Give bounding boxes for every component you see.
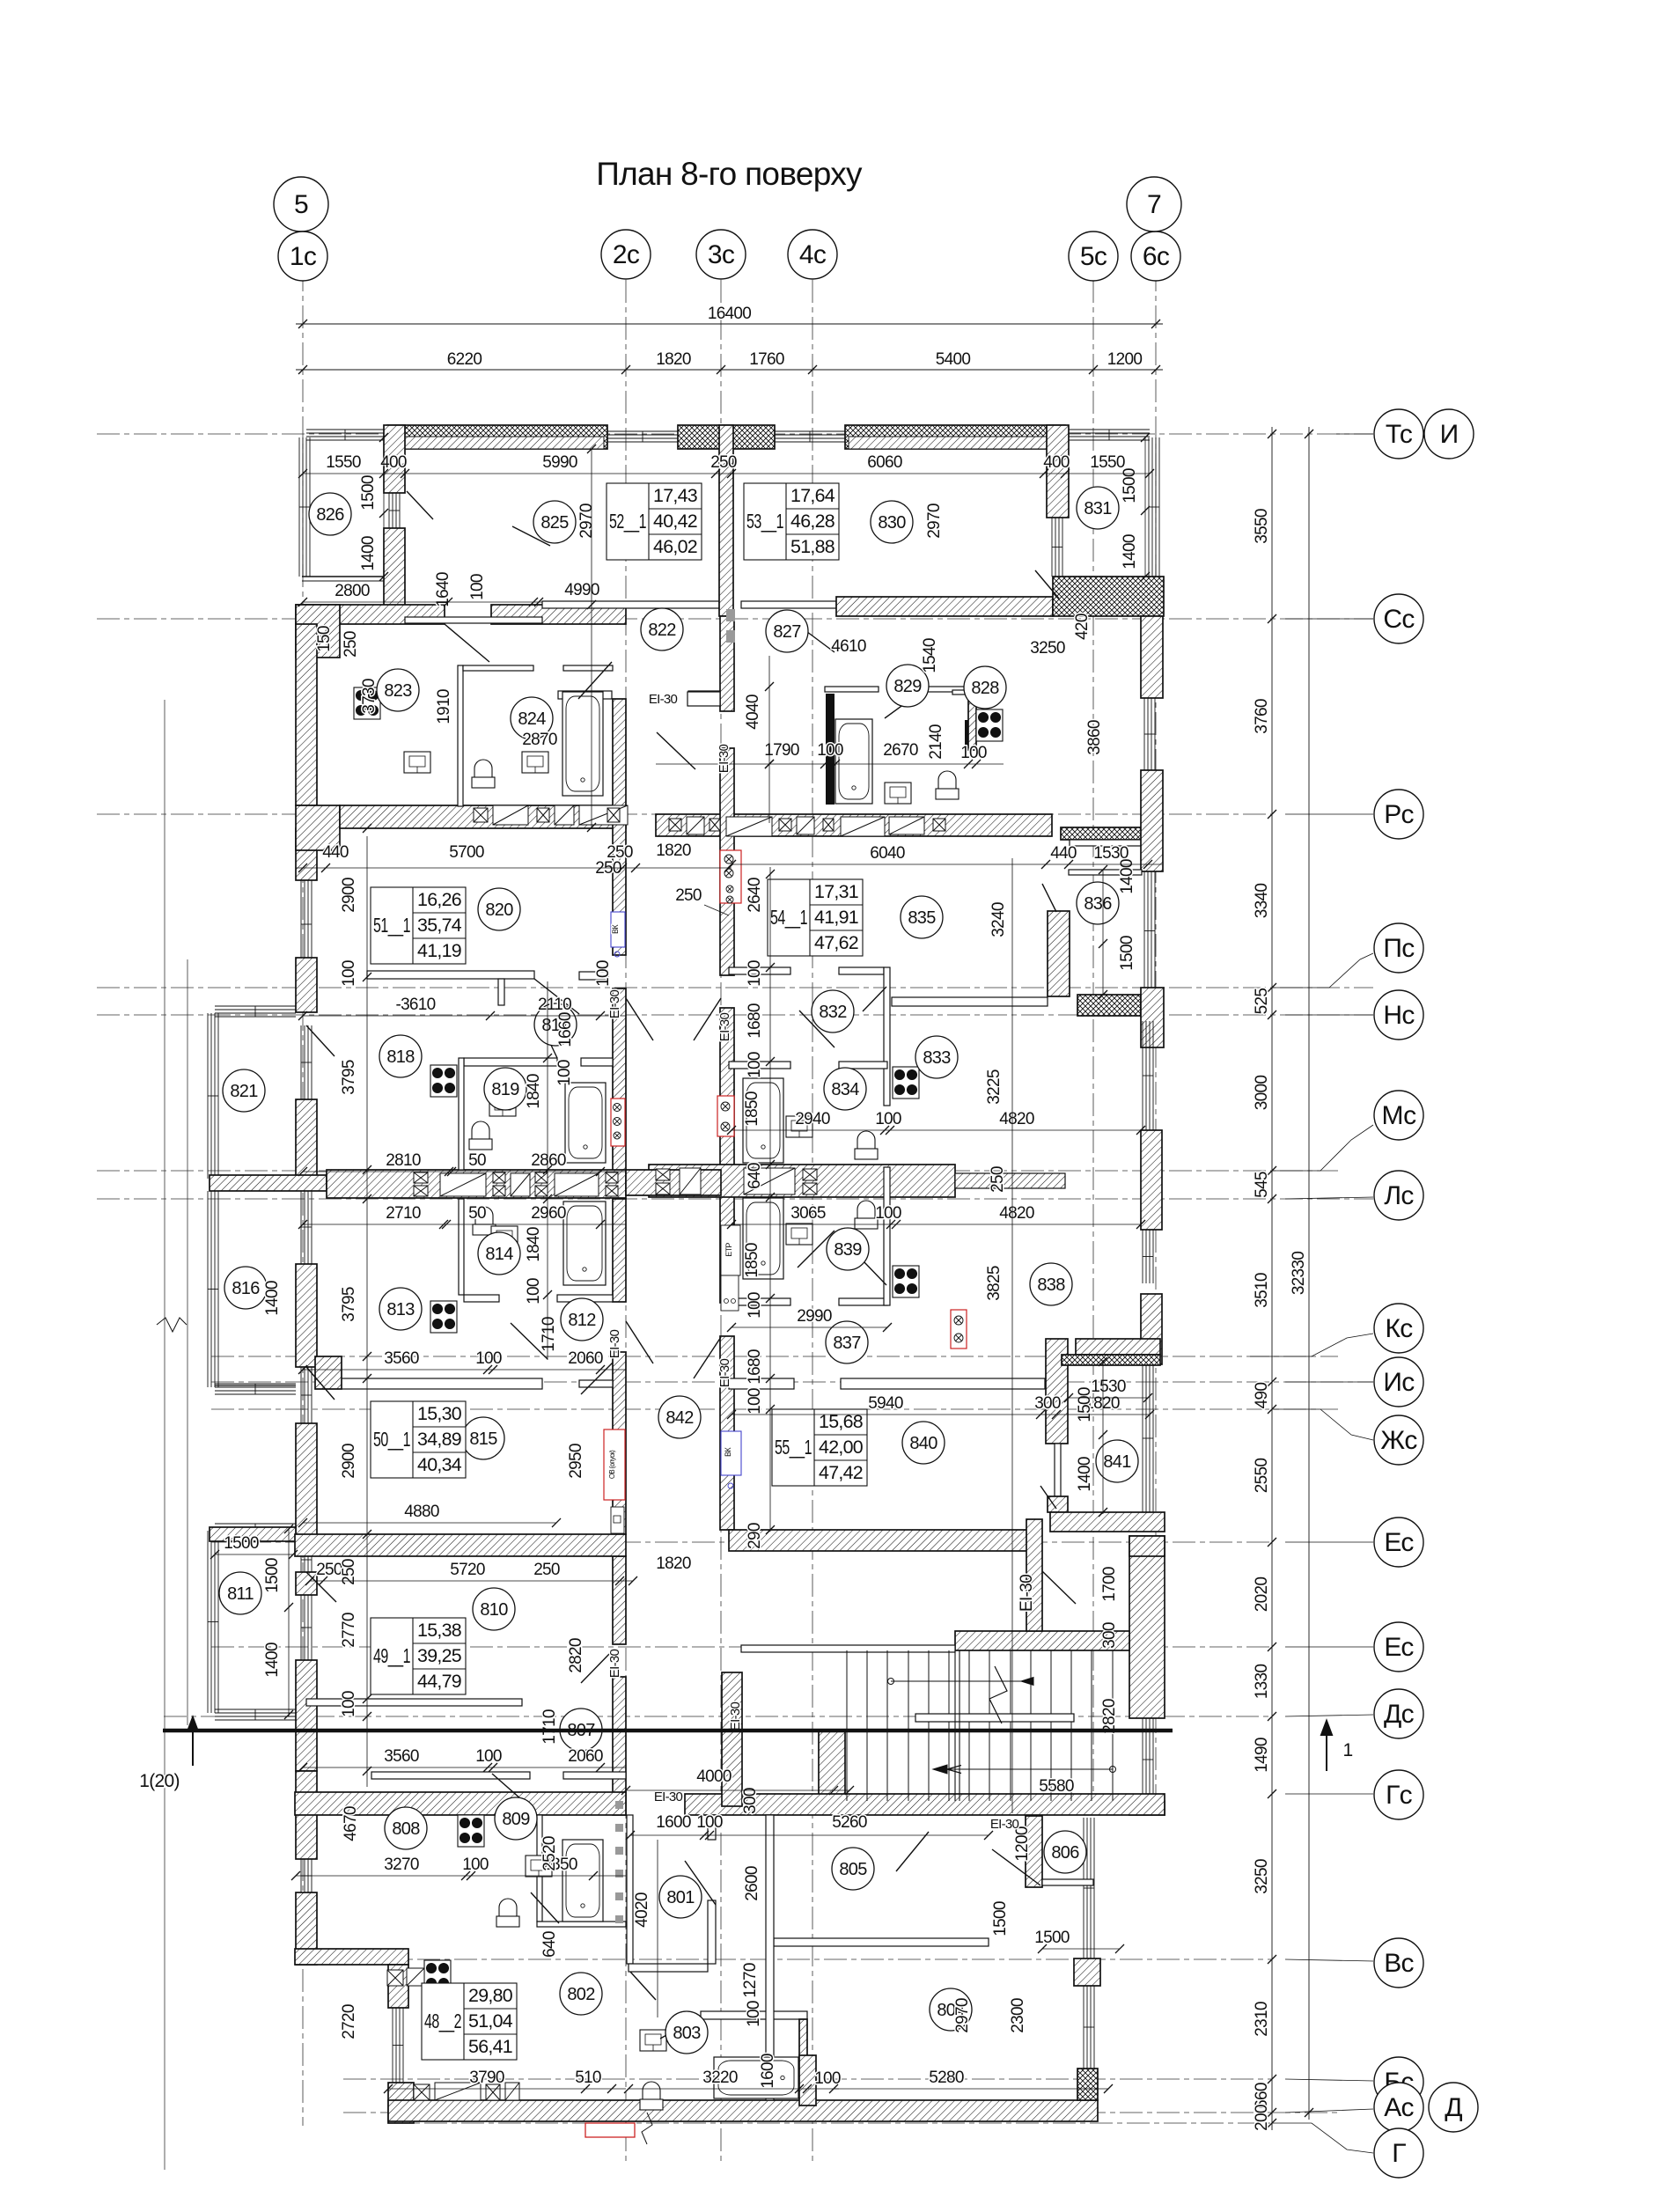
svg-text:100: 100 <box>475 1747 502 1766</box>
svg-text:814: 814 <box>485 1245 513 1264</box>
svg-text:510: 510 <box>575 2069 601 2087</box>
svg-text:100: 100 <box>555 1060 574 1086</box>
svg-text:100: 100 <box>340 960 358 987</box>
svg-text:3790: 3790 <box>469 2069 504 2087</box>
svg-text:250: 250 <box>342 631 360 658</box>
svg-text:1850: 1850 <box>743 1091 761 1127</box>
svg-text:5580: 5580 <box>1039 1777 1074 1796</box>
svg-text:100: 100 <box>817 741 843 760</box>
svg-text:ЕІ-30: ЕІ-30 <box>654 1789 683 1804</box>
svg-text:Лс: Лс <box>1384 1181 1414 1210</box>
svg-text:3250: 3250 <box>1253 1859 1271 1894</box>
svg-text:5700: 5700 <box>449 843 484 862</box>
svg-text:3560: 3560 <box>384 1349 419 1368</box>
svg-text:2970: 2970 <box>925 503 944 539</box>
svg-text:818: 818 <box>386 1047 415 1067</box>
svg-text:834: 834 <box>831 1080 859 1099</box>
svg-text:826: 826 <box>316 505 344 525</box>
svg-text:2140: 2140 <box>927 724 945 760</box>
svg-text:300: 300 <box>1100 1622 1119 1649</box>
svg-text:5260: 5260 <box>832 1813 867 1832</box>
svg-text:5280: 5280 <box>929 2069 964 2087</box>
svg-text:-3610: -3610 <box>395 996 435 1014</box>
svg-text:100: 100 <box>475 1349 502 1368</box>
svg-text:100: 100 <box>746 1292 764 1319</box>
svg-text:820: 820 <box>485 900 513 920</box>
svg-text:ОВ (опуск): ОВ (опуск) <box>608 1450 616 1479</box>
svg-text:4990: 4990 <box>564 581 599 599</box>
svg-text:Мс: Мс <box>1382 1101 1417 1130</box>
svg-text:816: 816 <box>232 1279 260 1298</box>
svg-text:41,91: 41,91 <box>814 908 858 928</box>
svg-text:29,80: 29,80 <box>468 1986 512 2006</box>
svg-text:3340: 3340 <box>1253 884 1271 919</box>
svg-text:Рс: Рс <box>1384 800 1414 829</box>
svg-text:ЕІ-30: ЕІ-30 <box>649 692 678 707</box>
svg-text:2870: 2870 <box>522 731 557 749</box>
svg-text:Ис: Ис <box>1383 1368 1415 1397</box>
svg-text:Пс: Пс <box>1383 934 1415 963</box>
svg-text:50__1: 50__1 <box>373 1428 410 1451</box>
svg-text:Ес: Ес <box>1384 1633 1414 1662</box>
svg-text:4с: 4с <box>799 240 827 269</box>
svg-text:ЕІ-30: ЕІ-30 <box>990 1817 1019 1832</box>
svg-text:1840: 1840 <box>525 1074 543 1109</box>
svg-text:6060: 6060 <box>867 453 902 472</box>
svg-text:490: 490 <box>1253 1383 1271 1409</box>
svg-text:803: 803 <box>673 2024 701 2043</box>
svg-text:53__1: 53__1 <box>746 510 783 533</box>
svg-text:4880: 4880 <box>404 1503 439 1521</box>
svg-text:3860: 3860 <box>1085 720 1104 755</box>
svg-text:2860: 2860 <box>531 1151 566 1170</box>
svg-text:640: 640 <box>540 1931 559 1958</box>
svg-text:828: 828 <box>971 679 999 698</box>
svg-text:1490: 1490 <box>1253 1738 1271 1773</box>
svg-text:5с: 5с <box>1080 242 1107 271</box>
svg-text:Нс: Нс <box>1383 1001 1415 1030</box>
svg-text:300: 300 <box>741 1788 760 1814</box>
svg-text:3760: 3760 <box>1253 699 1271 734</box>
svg-text:1820: 1820 <box>656 350 691 369</box>
svg-text:4820: 4820 <box>999 1110 1034 1128</box>
svg-text:100: 100 <box>594 960 613 987</box>
svg-text:100: 100 <box>745 2001 763 2027</box>
svg-text:3220: 3220 <box>702 2069 738 2087</box>
svg-text:808: 808 <box>392 1819 420 1839</box>
svg-text:2990: 2990 <box>797 1307 832 1326</box>
svg-text:640: 640 <box>746 1163 764 1189</box>
svg-text:1530: 1530 <box>1091 1378 1126 1396</box>
svg-text:5940: 5940 <box>868 1394 903 1413</box>
svg-text:250: 250 <box>316 1561 342 1579</box>
svg-text:2640: 2640 <box>746 878 764 913</box>
svg-text:50: 50 <box>468 1204 486 1223</box>
svg-text:4820: 4820 <box>999 1204 1034 1223</box>
svg-text:3510: 3510 <box>1253 1273 1271 1308</box>
svg-text:100: 100 <box>746 1388 764 1415</box>
svg-text:1700: 1700 <box>1100 1567 1119 1602</box>
svg-text:1400: 1400 <box>359 536 378 571</box>
svg-text:ЕІ-30: ЕІ-30 <box>717 1012 732 1041</box>
svg-text:15,30: 15,30 <box>417 1404 461 1424</box>
svg-text:51,04: 51,04 <box>468 2011 513 2032</box>
svg-text:100: 100 <box>696 1813 723 1832</box>
svg-text:15,68: 15,68 <box>819 1412 863 1432</box>
svg-text:2900: 2900 <box>340 878 358 913</box>
svg-text:1500: 1500 <box>224 1534 259 1553</box>
svg-text:1с: 1с <box>290 242 317 271</box>
svg-text:Кс: Кс <box>1385 1314 1413 1343</box>
svg-text:5: 5 <box>294 190 308 219</box>
svg-text:3550: 3550 <box>1253 509 1271 544</box>
svg-text:840: 840 <box>909 1434 937 1453</box>
svg-text:2720: 2720 <box>340 2004 358 2039</box>
svg-text:100: 100 <box>875 1110 901 1128</box>
svg-text:1760: 1760 <box>749 350 784 369</box>
svg-text:833: 833 <box>923 1048 951 1068</box>
svg-text:250: 250 <box>533 1561 560 1579</box>
svg-text:2300: 2300 <box>1009 1998 1027 2033</box>
svg-text:821: 821 <box>230 1082 258 1101</box>
svg-text:3270: 3270 <box>384 1856 419 1874</box>
svg-text:52__1: 52__1 <box>609 510 646 533</box>
svg-text:2600: 2600 <box>743 1866 761 1901</box>
svg-text:ЕІ-30: ЕІ-30 <box>1018 1575 1036 1612</box>
svg-text:35,74: 35,74 <box>417 915 462 936</box>
svg-text:400: 400 <box>1043 453 1070 472</box>
svg-text:ЕІ-30: ЕІ-30 <box>607 1649 622 1678</box>
svg-text:2060: 2060 <box>568 1349 603 1368</box>
svg-text:809: 809 <box>502 1810 530 1829</box>
svg-text:100: 100 <box>525 1278 543 1304</box>
svg-text:100: 100 <box>746 960 764 987</box>
svg-text:1330: 1330 <box>1253 1665 1271 1700</box>
svg-text:2940: 2940 <box>795 1110 830 1128</box>
svg-text:ЕІ-30: ЕІ-30 <box>728 1701 743 1731</box>
svg-text:5990: 5990 <box>542 453 577 472</box>
svg-text:ЕІ-30: ЕІ-30 <box>717 1358 732 1387</box>
svg-text:3000: 3000 <box>1253 1076 1271 1111</box>
svg-text:290: 290 <box>746 1523 764 1549</box>
svg-text:819: 819 <box>491 1080 519 1099</box>
svg-text:42,00: 42,00 <box>819 1437 863 1458</box>
svg-text:150: 150 <box>315 626 334 652</box>
svg-text:50: 50 <box>468 1151 486 1170</box>
svg-text:3065: 3065 <box>790 1204 826 1223</box>
svg-text:2820: 2820 <box>567 1638 585 1673</box>
svg-text:2670: 2670 <box>883 741 918 760</box>
svg-text:1500: 1500 <box>991 1901 1010 1936</box>
svg-text:1680: 1680 <box>746 1003 764 1039</box>
svg-text:1200: 1200 <box>1013 1826 1032 1862</box>
svg-text:Жс: Жс <box>1380 1426 1417 1455</box>
svg-text:841: 841 <box>1103 1452 1131 1472</box>
svg-text:54__1: 54__1 <box>770 906 807 929</box>
svg-text:1400: 1400 <box>263 1281 282 1316</box>
svg-text:842: 842 <box>665 1408 694 1428</box>
svg-text:1500: 1500 <box>1076 1387 1094 1422</box>
svg-text:2800: 2800 <box>335 582 370 600</box>
svg-text:2770: 2770 <box>340 1613 358 1648</box>
svg-text:ЕТР: ЕТР <box>724 1243 733 1257</box>
svg-text:Сс: Сс <box>1383 605 1415 634</box>
svg-text:100: 100 <box>468 574 487 600</box>
svg-text:250: 250 <box>710 453 737 472</box>
svg-text:100: 100 <box>462 1856 489 1874</box>
svg-text:1540: 1540 <box>921 638 939 673</box>
svg-text:1660: 1660 <box>556 1012 575 1047</box>
svg-text:812: 812 <box>568 1311 596 1330</box>
svg-text:3795: 3795 <box>340 1287 358 1322</box>
svg-text:41,19: 41,19 <box>417 941 461 961</box>
svg-text:40,34: 40,34 <box>417 1455 462 1475</box>
svg-text:5400: 5400 <box>936 350 971 369</box>
svg-text:1500: 1500 <box>1034 1929 1070 1947</box>
svg-text:250: 250 <box>675 886 702 905</box>
svg-text:ЕІ-30: ЕІ-30 <box>717 744 732 773</box>
svg-text:200: 200 <box>1253 2105 1271 2131</box>
svg-text:835: 835 <box>908 908 936 928</box>
svg-text:4670: 4670 <box>342 1806 360 1841</box>
svg-text:813: 813 <box>386 1300 415 1319</box>
svg-text:832: 832 <box>819 1003 847 1022</box>
svg-text:1: 1 <box>1343 1740 1353 1760</box>
svg-text:1600: 1600 <box>656 1813 691 1832</box>
svg-text:16,26: 16,26 <box>417 890 461 910</box>
svg-text:3250: 3250 <box>1030 639 1065 658</box>
svg-text:1550: 1550 <box>1090 453 1125 472</box>
svg-text:32330: 32330 <box>1290 1252 1308 1295</box>
svg-text:250: 250 <box>595 859 621 878</box>
svg-text:1270: 1270 <box>741 1963 760 1998</box>
svg-text:1600: 1600 <box>759 2054 777 2089</box>
svg-text:2020: 2020 <box>1253 1577 1271 1613</box>
svg-text:1500: 1500 <box>359 475 378 511</box>
svg-text:2550: 2550 <box>1253 1459 1271 1494</box>
svg-text:ЕІ-30: ЕІ-30 <box>607 989 622 1018</box>
svg-text:1400: 1400 <box>1121 534 1139 570</box>
svg-text:Гс: Гс <box>1386 1781 1413 1810</box>
svg-text:39,25: 39,25 <box>417 1646 461 1666</box>
svg-text:1(20): 1(20) <box>139 1771 180 1791</box>
svg-text:1840: 1840 <box>525 1227 543 1262</box>
svg-text:46,28: 46,28 <box>790 511 834 532</box>
svg-text:Вс: Вс <box>1384 1949 1414 1978</box>
svg-text:2970: 2970 <box>577 503 596 539</box>
svg-text:44,79: 44,79 <box>417 1672 461 1692</box>
svg-text:400: 400 <box>380 453 407 472</box>
svg-text:Ас: Ас <box>1384 2093 1414 2122</box>
svg-text:2520: 2520 <box>540 1836 559 1871</box>
svg-text:3825: 3825 <box>985 1266 1004 1301</box>
svg-text:ВК: ВК <box>724 1447 732 1457</box>
svg-text:802: 802 <box>567 1985 595 2004</box>
svg-text:1850: 1850 <box>743 1243 761 1278</box>
svg-text:17,64: 17,64 <box>790 486 835 506</box>
svg-text:План 8-го поверху: План 8-го поверху <box>596 156 863 192</box>
svg-text:7: 7 <box>1147 190 1161 219</box>
svg-text:806: 806 <box>1051 1843 1079 1863</box>
svg-text:440: 440 <box>322 843 349 862</box>
svg-text:2810: 2810 <box>386 1151 421 1170</box>
svg-text:17,43: 17,43 <box>653 486 697 506</box>
svg-text:824: 824 <box>518 709 546 729</box>
svg-text:1820: 1820 <box>656 841 691 860</box>
svg-text:1550: 1550 <box>326 453 361 472</box>
svg-text:2110: 2110 <box>538 996 571 1014</box>
svg-text:47,62: 47,62 <box>814 933 858 953</box>
svg-text:Дс: Дс <box>1384 1700 1415 1729</box>
svg-text:100: 100 <box>875 1204 901 1223</box>
svg-text:Ес: Ес <box>1384 1528 1414 1557</box>
svg-text:810: 810 <box>480 1600 508 1620</box>
svg-text:34,89: 34,89 <box>417 1429 461 1450</box>
svg-text:Тс: Тс <box>1386 420 1413 449</box>
svg-text:И: И <box>1440 420 1459 449</box>
svg-text:3с: 3с <box>708 240 735 269</box>
svg-text:1820: 1820 <box>656 1554 691 1573</box>
svg-text:4040: 4040 <box>744 694 762 730</box>
svg-text:5720: 5720 <box>450 1561 485 1579</box>
svg-text:1500: 1500 <box>263 1558 282 1593</box>
svg-text:825: 825 <box>540 513 569 533</box>
svg-text:3795: 3795 <box>340 1060 358 1095</box>
svg-text:545: 545 <box>1253 1172 1271 1198</box>
svg-text:15,38: 15,38 <box>417 1620 461 1641</box>
svg-text:3560: 3560 <box>384 1747 419 1766</box>
svg-text:Д: Д <box>1445 2093 1462 2122</box>
svg-text:3240: 3240 <box>989 902 1008 937</box>
svg-text:2310: 2310 <box>1253 2002 1271 2037</box>
svg-text:1680: 1680 <box>746 1349 764 1385</box>
svg-text:805: 805 <box>839 1860 867 1879</box>
svg-text:ЕІ-30: ЕІ-30 <box>607 1329 622 1358</box>
svg-text:17,31: 17,31 <box>814 882 858 902</box>
svg-text:51,88: 51,88 <box>790 537 834 557</box>
svg-text:49__1: 49__1 <box>373 1644 410 1667</box>
svg-text:6с: 6с <box>1143 242 1170 271</box>
svg-text:4020: 4020 <box>633 1892 651 1928</box>
svg-text:48__2: 48__2 <box>424 2010 461 2032</box>
svg-text:16400: 16400 <box>708 305 751 323</box>
svg-text:822: 822 <box>648 621 676 640</box>
svg-text:47,42: 47,42 <box>819 1463 863 1483</box>
svg-text:2060: 2060 <box>568 1747 603 1766</box>
svg-text:827: 827 <box>773 622 801 642</box>
svg-text:1710: 1710 <box>540 1317 558 1352</box>
svg-text:3225: 3225 <box>985 1069 1004 1105</box>
svg-text:525: 525 <box>1253 988 1271 1015</box>
svg-text:6040: 6040 <box>870 844 905 863</box>
svg-text:837: 837 <box>833 1334 861 1353</box>
svg-text:811: 811 <box>227 1584 254 1604</box>
svg-text:2900: 2900 <box>340 1444 358 1479</box>
svg-text:55__1: 55__1 <box>775 1436 812 1459</box>
svg-text:46,02: 46,02 <box>653 537 697 557</box>
svg-text:100: 100 <box>960 744 987 762</box>
svg-text:40,42: 40,42 <box>653 511 697 532</box>
svg-text:ВК: ВК <box>611 924 620 934</box>
svg-text:4610: 4610 <box>831 637 866 656</box>
svg-text:2с: 2с <box>613 240 640 269</box>
svg-text:815: 815 <box>469 1429 497 1449</box>
svg-text:823: 823 <box>384 681 412 701</box>
svg-text:829: 829 <box>893 677 922 696</box>
svg-text:2950: 2950 <box>567 1444 585 1479</box>
svg-text:2970: 2970 <box>953 1998 972 2033</box>
svg-text:250: 250 <box>989 1166 1007 1193</box>
svg-text:801: 801 <box>666 1888 695 1907</box>
svg-text:1400: 1400 <box>263 1642 282 1678</box>
svg-text:100: 100 <box>340 1691 358 1717</box>
svg-text:830: 830 <box>878 513 906 533</box>
svg-text:1910: 1910 <box>435 689 453 724</box>
svg-text:1200: 1200 <box>1107 350 1143 369</box>
svg-text:4000: 4000 <box>696 1767 732 1786</box>
svg-text:2960: 2960 <box>531 1204 566 1223</box>
svg-text:836: 836 <box>1084 894 1112 914</box>
svg-text:1400: 1400 <box>1076 1457 1094 1492</box>
svg-text:1710: 1710 <box>540 1709 559 1745</box>
svg-text:1500: 1500 <box>1118 936 1136 971</box>
svg-text:420: 420 <box>1073 614 1092 640</box>
svg-text:831: 831 <box>1084 499 1112 518</box>
svg-text:56,41: 56,41 <box>468 2037 512 2057</box>
svg-text:100: 100 <box>746 1052 764 1078</box>
svg-text:51__1: 51__1 <box>373 914 410 937</box>
svg-text:2710: 2710 <box>386 1204 421 1223</box>
svg-text:6220: 6220 <box>447 350 482 369</box>
svg-text:300: 300 <box>1034 1394 1061 1413</box>
svg-text:838: 838 <box>1037 1275 1065 1295</box>
svg-text:3730: 3730 <box>360 679 379 714</box>
svg-text:839: 839 <box>834 1240 862 1260</box>
svg-text:Г: Г <box>1392 2139 1406 2168</box>
